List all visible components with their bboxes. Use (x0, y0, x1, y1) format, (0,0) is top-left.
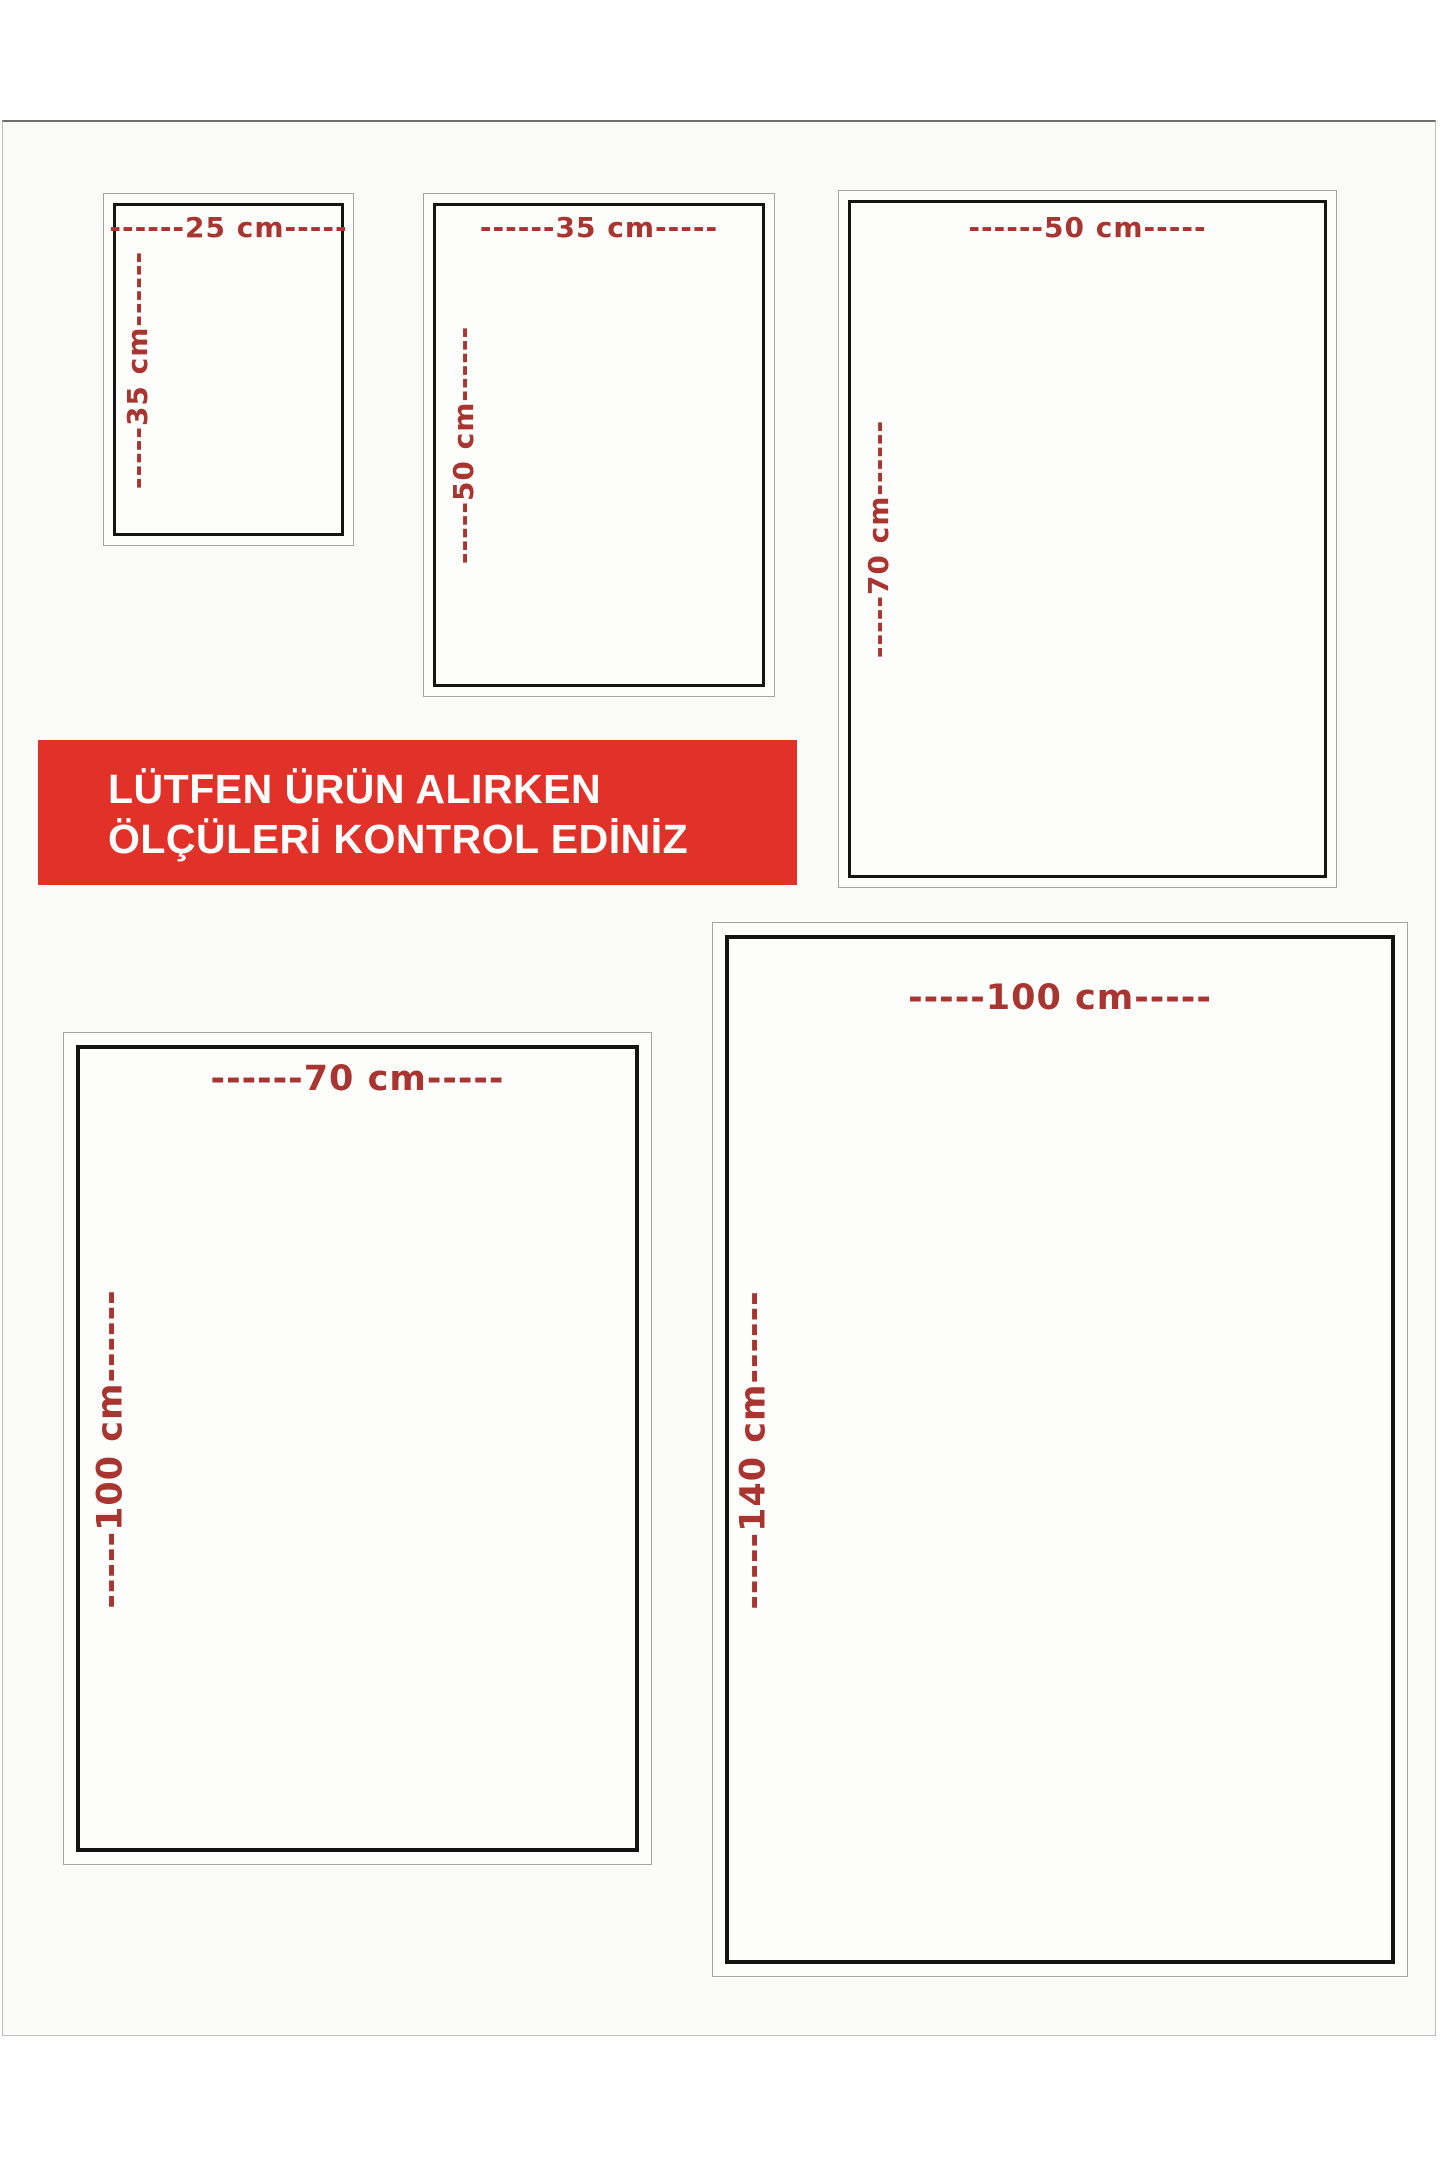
size-box-35x50: ------35 cm----- -----50 cm------ (423, 193, 775, 697)
notice-banner-line2: ÖLÇÜLERİ KONTROL EDİNİZ (108, 814, 787, 864)
size-guide-page: { "page": { "language": "tr", "descripti… (0, 0, 1440, 2160)
size-box-35x50-inner-border (433, 203, 765, 687)
notice-banner: LÜTFEN ÜRÜN ALIRKEN ÖLÇÜLERİ KONTROL EDİ… (38, 740, 797, 885)
size-box-100x140-inner-border (725, 935, 1395, 1964)
size-box-50x70-inner-border (848, 200, 1327, 878)
width-dimension-label: ------50 cm----- (839, 214, 1336, 242)
size-box-70x100: ------70 cm----- -----100 cm------ (63, 1032, 652, 1865)
notice-banner-line1: LÜTFEN ÜRÜN ALIRKEN (108, 764, 787, 814)
size-box-70x100-inner-border (76, 1045, 639, 1852)
width-dimension-label: -----100 cm----- (713, 981, 1407, 1016)
height-dimension-label: -----140 cm------ (737, 1290, 772, 1609)
size-box-50x70: ------50 cm----- -----70 cm------ (838, 190, 1337, 888)
height-dimension-label: -----50 cm------ (450, 326, 478, 564)
size-box-100x140: -----100 cm----- -----140 cm------ (712, 922, 1408, 1977)
width-dimension-label: ------25 cm----- (104, 214, 353, 242)
height-dimension-label: -----70 cm------ (865, 420, 893, 658)
height-dimension-label: -----35 cm------ (124, 250, 152, 488)
height-dimension-label: -----100 cm------ (94, 1289, 129, 1608)
width-dimension-label: ------35 cm----- (424, 214, 774, 242)
width-dimension-label: ------70 cm----- (64, 1062, 651, 1097)
size-box-25x35: ------25 cm----- -----35 cm------ (103, 193, 354, 546)
